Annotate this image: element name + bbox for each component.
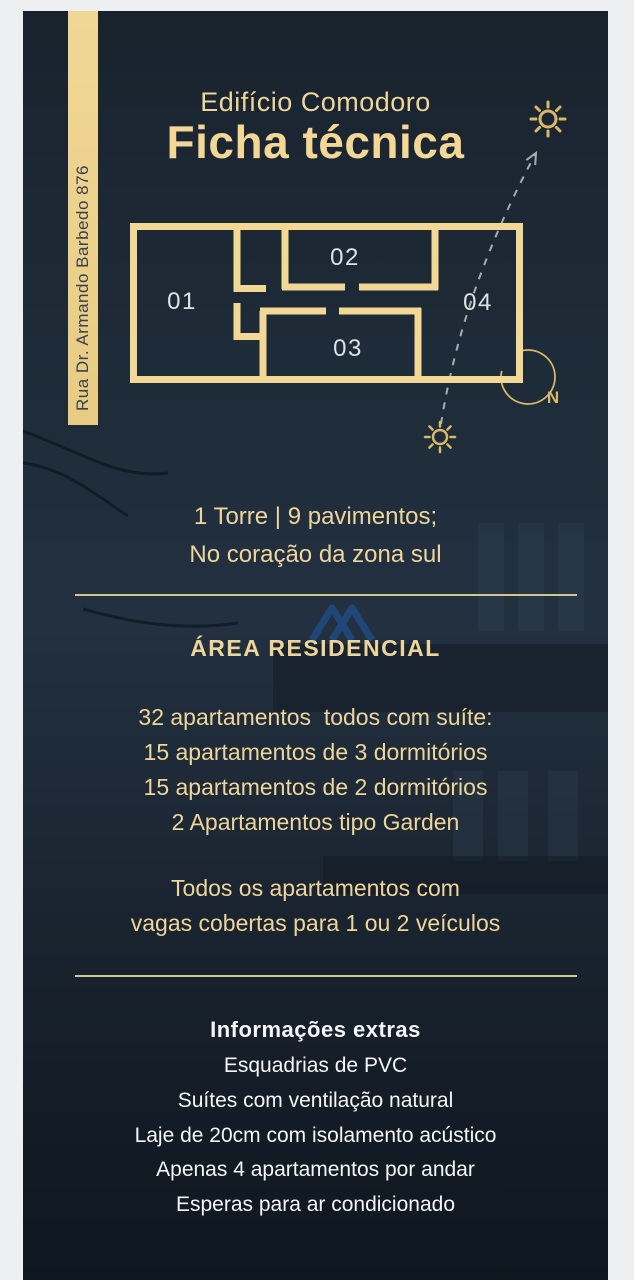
residential-item: 32 apartamentos todos com suíte: (23, 700, 608, 735)
unit-label-02: 02 (330, 244, 360, 271)
residential-item: 2 Apartamentos tipo Garden (23, 805, 608, 840)
page-title: Ficha técnica (23, 115, 608, 169)
residential-list: 32 apartamentos todos com suíte: 15 apar… (23, 700, 608, 840)
sun-icon-bottom (425, 422, 455, 452)
tower-info-line1: 1 Torre | 9 pavimentos; (23, 498, 608, 536)
extras-item: Suítes com ventilação natural (23, 1084, 608, 1119)
floor-plan: 01 02 03 04 (130, 223, 523, 383)
unit-label-01: 01 (167, 288, 197, 315)
extras-item: Esquadrias de PVC (23, 1049, 608, 1084)
residential-item: 15 apartamentos de 3 dormitórios (23, 735, 608, 770)
unit-label-04: 04 (463, 289, 493, 316)
divider-top (75, 594, 577, 596)
divider-bottom (75, 975, 577, 977)
parking-info-line1: Todos os apartamentos com (23, 871, 608, 906)
extras-item: Apenas 4 apartamentos por andar (23, 1153, 608, 1188)
address-banner: Rua Dr. Armando Barbedo 876 (68, 11, 98, 425)
north-label: N (547, 388, 559, 407)
extras-item: Laje de 20cm com isolamento acústico (23, 1119, 608, 1154)
tower-info: 1 Torre | 9 pavimentos; No coração da zo… (23, 498, 608, 574)
residential-item: 15 apartamentos de 2 dormitórios (23, 770, 608, 805)
poster-canvas: N Rua Dr. Armando Barbedo 876 Edifício C… (23, 11, 608, 1280)
residential-heading: ÁREA RESIDENCIAL (23, 633, 608, 663)
extras-item: Esperas para ar condicionado (23, 1188, 608, 1223)
building-subtitle: Edifício Comodoro (23, 87, 608, 118)
address-banner-label: Rua Dr. Armando Barbedo 876 (73, 165, 93, 425)
extras-heading: Informações extras (23, 1015, 608, 1045)
parking-info: Todos os apartamentos com vagas cobertas… (23, 871, 608, 941)
extras-list: Esquadrias de PVC Suítes com ventilação … (23, 1049, 608, 1223)
unit-label-03: 03 (333, 335, 363, 362)
tower-info-line2: No coração da zona sul (23, 536, 608, 574)
parking-info-line2: vagas cobertas para 1 ou 2 veículos (23, 906, 608, 941)
